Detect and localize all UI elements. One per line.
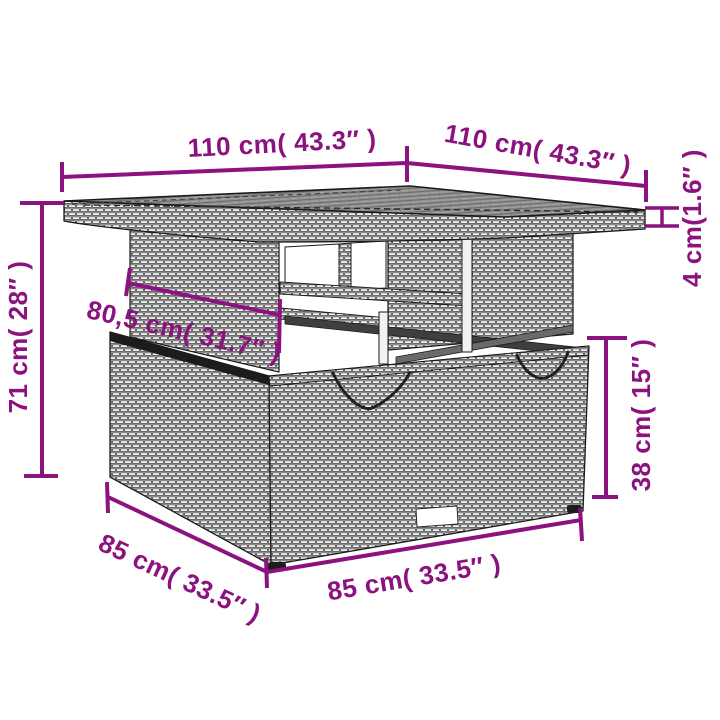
base-label-tag: [416, 506, 458, 527]
dimension-diagram: 110 cm( 43.3″ ) 110 cm( 43.3″ ) 4 cm(1.6…: [0, 0, 720, 720]
label-total-height: 71 cm( 28″ ): [3, 261, 33, 414]
label-top-thickness: 4 cm(1.6″ ): [677, 149, 707, 287]
dimension-line-base-height: [587, 338, 627, 497]
diagram-canvas: 110 cm( 43.3″ ) 110 cm( 43.3″ ) 4 cm(1.6…: [0, 0, 720, 720]
riser-window-right: [351, 241, 386, 290]
riser-window-post: [339, 243, 351, 292]
base-left-face: [110, 332, 271, 565]
lift-post-left: [379, 312, 388, 364]
lift-post-right: [462, 230, 472, 352]
table-illustration: [64, 186, 645, 571]
dimension-bracket-top-thickness: [645, 208, 679, 226]
label-base-height: 38 cm( 15″ ): [626, 339, 656, 492]
label-top-width: 110 cm( 43.3″ ): [187, 123, 377, 163]
